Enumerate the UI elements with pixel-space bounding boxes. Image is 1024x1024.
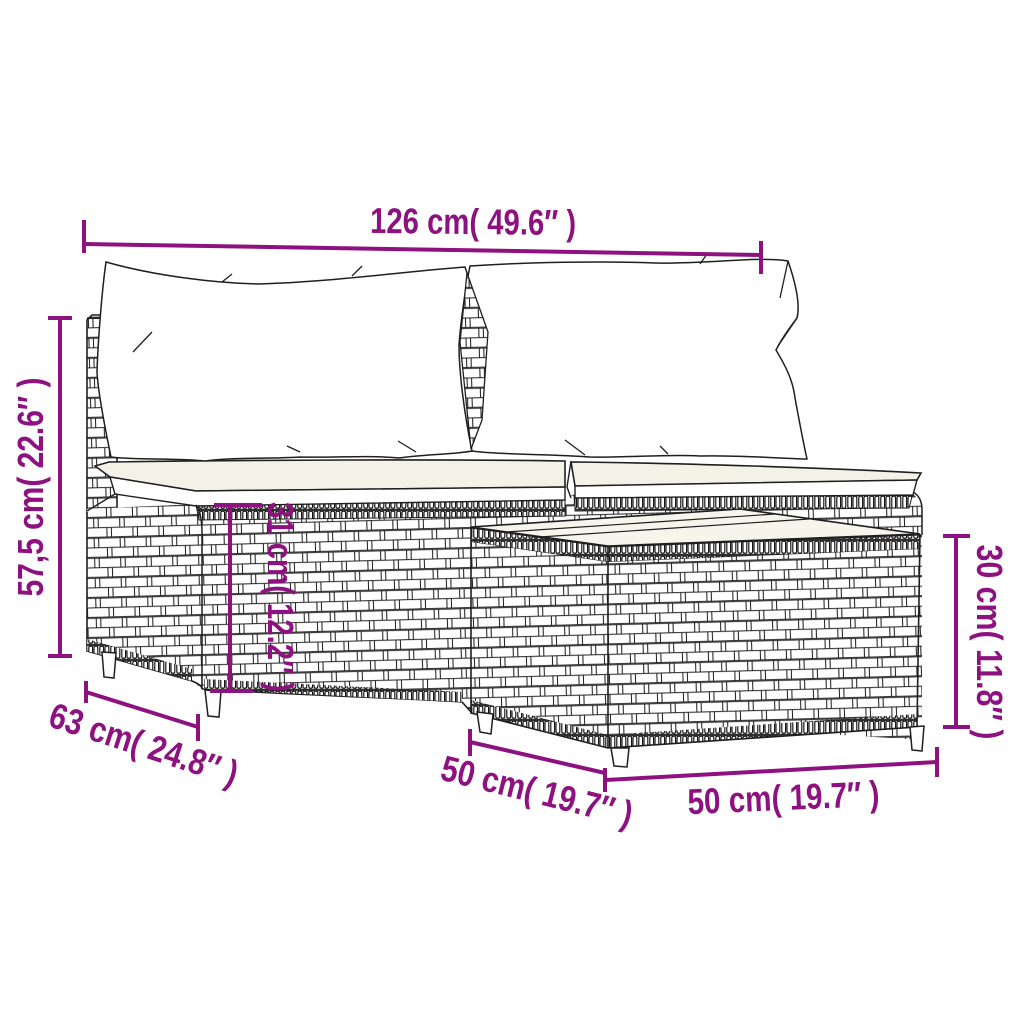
svg-text:126 cm( 49.6″ ): 126 cm( 49.6″ )	[370, 200, 576, 243]
svg-text:31 cm( 12.2″ ): 31 cm( 12.2″ )	[260, 502, 301, 692]
svg-text:50 cm( 19.7″ ): 50 cm( 19.7″ )	[687, 773, 881, 822]
svg-text:57,5 cm( 22.6″ ): 57,5 cm( 22.6″ )	[10, 378, 51, 597]
svg-text:30 cm( 11.8″ ): 30 cm( 11.8″ )	[969, 545, 1010, 740]
